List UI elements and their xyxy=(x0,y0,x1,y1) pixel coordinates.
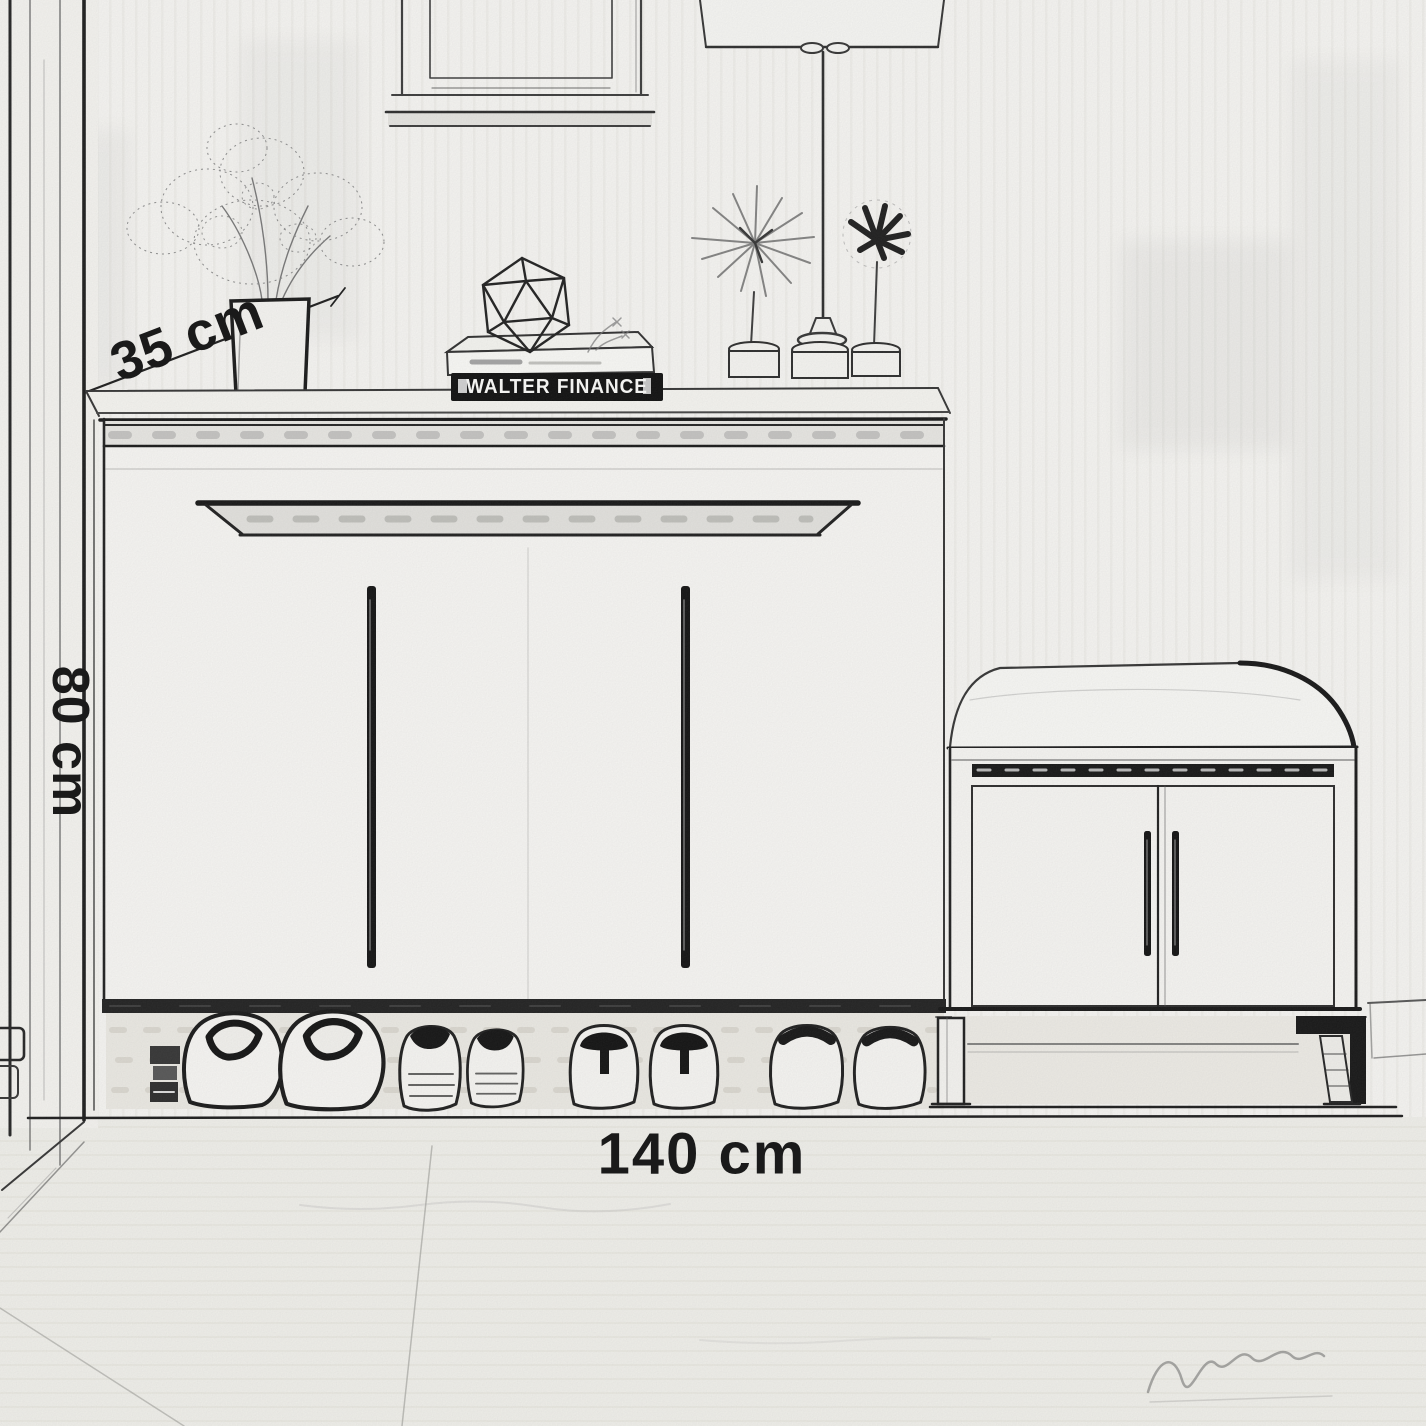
sketch-canvas: 35 cm 80 cm 140 cm WALTER FINANCE xyxy=(0,0,1426,1426)
paper-grain xyxy=(0,0,1426,1426)
sketch-drawing xyxy=(0,0,1426,1426)
